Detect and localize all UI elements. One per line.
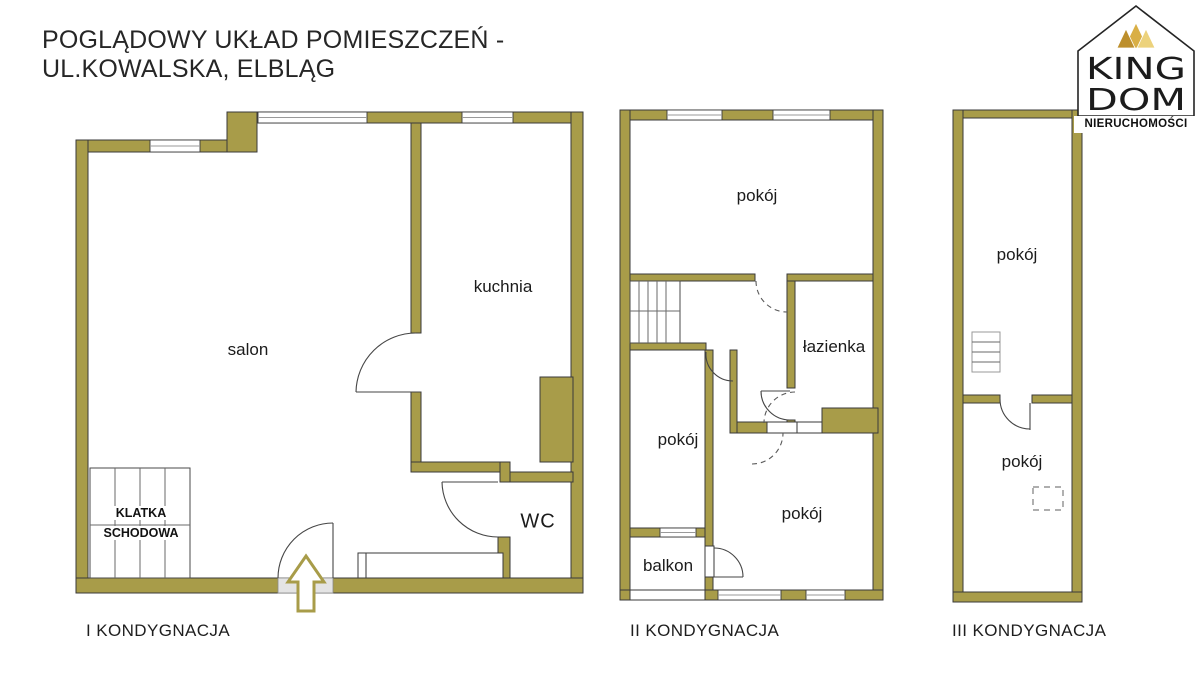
page-title: POGLĄDOWY UKŁAD POMIESZCZEŃ - UL.KOWALSK… [42, 26, 504, 84]
entrance-arrow-icon [288, 556, 324, 611]
page-title-line-2: UL.KOWALSKA, ELBLĄG [42, 55, 504, 84]
wc-door-arc [442, 482, 498, 537]
logo-word-king: KING [1086, 52, 1186, 87]
room-label-salon: salon [228, 340, 269, 360]
balcony-railing [630, 590, 705, 600]
staircase-level-3 [972, 332, 1000, 372]
window-icon [258, 112, 367, 123]
window-icon [462, 112, 513, 123]
balcony-door-arc [705, 546, 743, 577]
bathroom-door-arc [761, 391, 790, 420]
room-label-pok-j: pokój [1002, 452, 1043, 472]
kitchen-door-arc [356, 333, 421, 392]
logo-word-dom: DOM [1086, 83, 1186, 118]
floor-caption-2: II KONDYGNACJA [630, 621, 779, 641]
room-label-balkon: balkon [643, 556, 693, 576]
room-label-pok-j: pokój [737, 186, 778, 206]
room-label-pok-j: pokój [658, 430, 699, 450]
room-label-pok-j: pokój [997, 245, 1038, 265]
agency-logo: KING DOM [1072, 4, 1200, 118]
floor-caption-1: I KONDYGNACJA [86, 621, 230, 641]
room-door-arc [1000, 399, 1030, 430]
room-label-pok-j: pokój [782, 504, 823, 524]
floorplan-canvas [0, 0, 1200, 683]
logo-tagline: NIERUCHOMOŚCI [1074, 116, 1198, 133]
staircase-level-2 [630, 281, 680, 343]
window-icon [773, 110, 830, 120]
skylight-dashed-box [1033, 487, 1063, 510]
window-icon [660, 528, 696, 537]
floor-caption-3: III KONDYGNACJA [952, 621, 1106, 641]
partition-wall [358, 553, 503, 578]
staircase-label-line-1: KLATKA [114, 506, 168, 520]
window-icon [667, 110, 722, 120]
room-door-arc [756, 281, 787, 312]
room-label--azienka: łazienka [803, 337, 865, 357]
floorplan-level-3 [953, 110, 1082, 602]
window-icon [150, 140, 200, 152]
staircase-label-line-2: SCHODOWA [102, 526, 181, 540]
room-label-kuchnia: kuchnia [474, 277, 533, 297]
window-icon [718, 590, 781, 600]
window-icon [806, 590, 845, 600]
room-label-WC: WC [520, 511, 555, 534]
page-title-line-1: POGLĄDOWY UKŁAD POMIESZCZEŃ - [42, 26, 504, 55]
staircase-level-1 [90, 468, 190, 578]
